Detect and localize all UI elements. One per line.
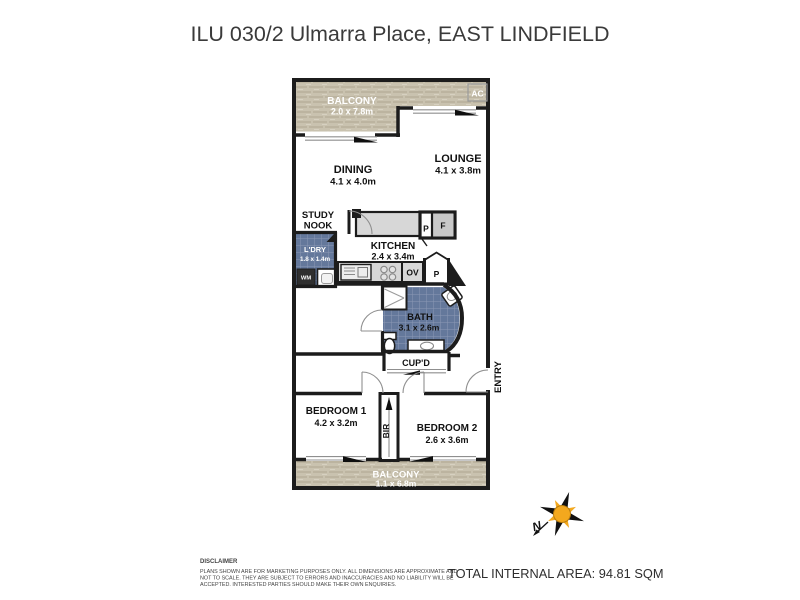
washing-machine-label: WM — [301, 276, 311, 282]
top-balcony-floor — [296, 82, 486, 132]
study-nook-label-2: NOOK — [304, 221, 333, 232]
kitchen-dims: 2.4 x 3.4m — [371, 252, 414, 262]
bath-dims: 3.1 x 2.6m — [399, 323, 440, 333]
top-balcony-label: BALCONY — [327, 96, 377, 107]
kitchen-label: KITCHEN — [371, 241, 415, 252]
shower-icon — [383, 287, 407, 310]
disclaimer-line-1: PLANS SHOWN ARE FOR MARKETING PURPOSES O… — [200, 569, 458, 575]
total-area-label: TOTAL INTERNAL AREA: 94.81 SQM — [448, 566, 663, 581]
laundry-label: L'DRY — [304, 245, 326, 254]
bath-label: BATH — [407, 312, 433, 323]
bedroom2-label: BEDROOM 2 — [417, 423, 478, 434]
footer: DISCLAIMER PLANS SHOWN ARE FOR MARKETING… — [200, 559, 663, 588]
compass-icon: N — [530, 482, 593, 545]
pantry-upper-label: P — [423, 224, 429, 234]
disclaimer-line-2: NOT TO SCALE. THEY ARE SUBJECT TO ERRORS… — [200, 576, 454, 582]
entry-label: ENTRY — [493, 360, 504, 393]
floor-plan: ILU 030/2 Ulmarra Place, EAST LINDFIELD — [0, 0, 800, 600]
bottom-balcony-dims: 1.1 x 6.8m — [376, 479, 417, 489]
laundry-dims: 1.8 x 1.4m — [300, 256, 331, 263]
cupboard-label: CUP'D — [402, 358, 430, 368]
top-balcony-dims: 2.0 x 7.8m — [331, 107, 373, 117]
oven-label: OV — [406, 268, 419, 278]
study-nook-label-1: STUDY — [302, 210, 335, 221]
sink-icon — [341, 265, 371, 281]
lounge-label: LOUNGE — [434, 153, 481, 165]
page-title: ILU 030/2 Ulmarra Place, EAST LINDFIELD — [190, 22, 609, 46]
lounge-dims: 4.1 x 3.8m — [435, 166, 481, 177]
bedroom2-dims: 2.6 x 3.6m — [425, 435, 468, 445]
bedroom1-dims: 4.2 x 3.2m — [314, 418, 357, 428]
bir-label: BIR — [381, 424, 391, 439]
compass-north-label: N — [530, 518, 543, 534]
dining-label: DINING — [334, 164, 373, 176]
floorplan-page: ILU 030/2 Ulmarra Place, EAST LINDFIELD — [0, 0, 800, 600]
disclaimer-line-3: ACCEPTED. INTERESTED PARTIES SHOULD MAKE… — [200, 582, 396, 588]
fridge-label: F — [440, 221, 445, 231]
bedroom1-label: BEDROOM 1 — [306, 406, 367, 417]
dining-dims: 4.1 x 4.0m — [330, 177, 376, 188]
pantry-lower-label: P — [434, 269, 440, 279]
ac-label: AC — [471, 89, 483, 99]
disclaimer-heading: DISCLAIMER — [200, 559, 238, 565]
